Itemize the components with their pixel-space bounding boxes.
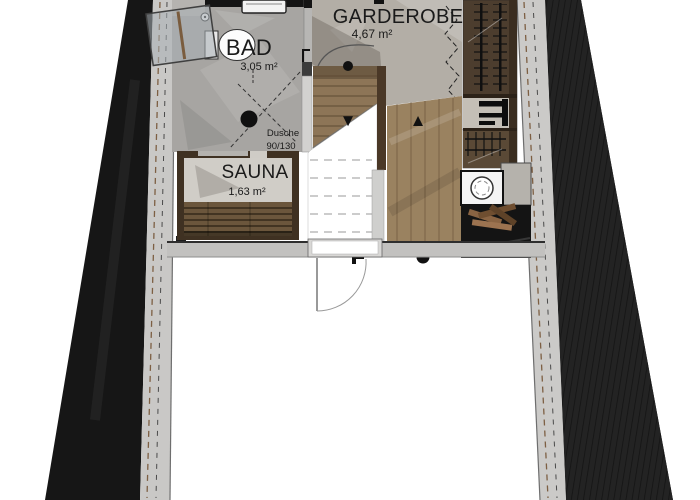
- room-sauna: SAUNA 1,63 m²: [177, 151, 299, 240]
- shower-label: Dusche: [267, 128, 299, 139]
- bad-area: 3,05 m²: [240, 61, 278, 73]
- lower-rail-icon: [463, 131, 509, 168]
- wardrobe-cabinet: [463, 0, 517, 168]
- stair-stringer: [377, 66, 386, 170]
- shower-size: 90/130: [266, 141, 295, 152]
- attic-floor-plan: BAD 3,05 m² Dusche 90/130 GARDEROBE 4,67…: [0, 0, 700, 500]
- floor-plan-canvas: BAD 3,05 m² Dusche 90/130 GARDEROBE 4,67…: [0, 0, 700, 500]
- stairs-down-arrow-icon: ▼: [340, 111, 357, 130]
- sauna-door-gap: [250, 151, 267, 158]
- sauna-bench-icon: [184, 202, 292, 236]
- garderobe-area: 4,67 m²: [352, 27, 393, 41]
- stairs-up-arrow-icon: ▲: [410, 111, 427, 130]
- garderobe-label: GARDEROBE: [333, 6, 464, 28]
- window-icon: [146, 5, 217, 65]
- hall-wood-floor: ▲: [387, 96, 462, 264]
- floor-drain-icon: [241, 111, 258, 128]
- washing-machine-icon: [461, 171, 503, 205]
- sauna-label: SAUNA: [222, 162, 289, 183]
- shelf-icon: [463, 98, 509, 128]
- stair-marker-dot: [343, 61, 353, 71]
- chimney-block: [501, 163, 531, 205]
- bad-label: BAD: [226, 35, 272, 60]
- sauna-area: 1,63 m²: [228, 186, 266, 198]
- staircase: ▼: [302, 61, 386, 249]
- sink-icon: [242, 0, 286, 13]
